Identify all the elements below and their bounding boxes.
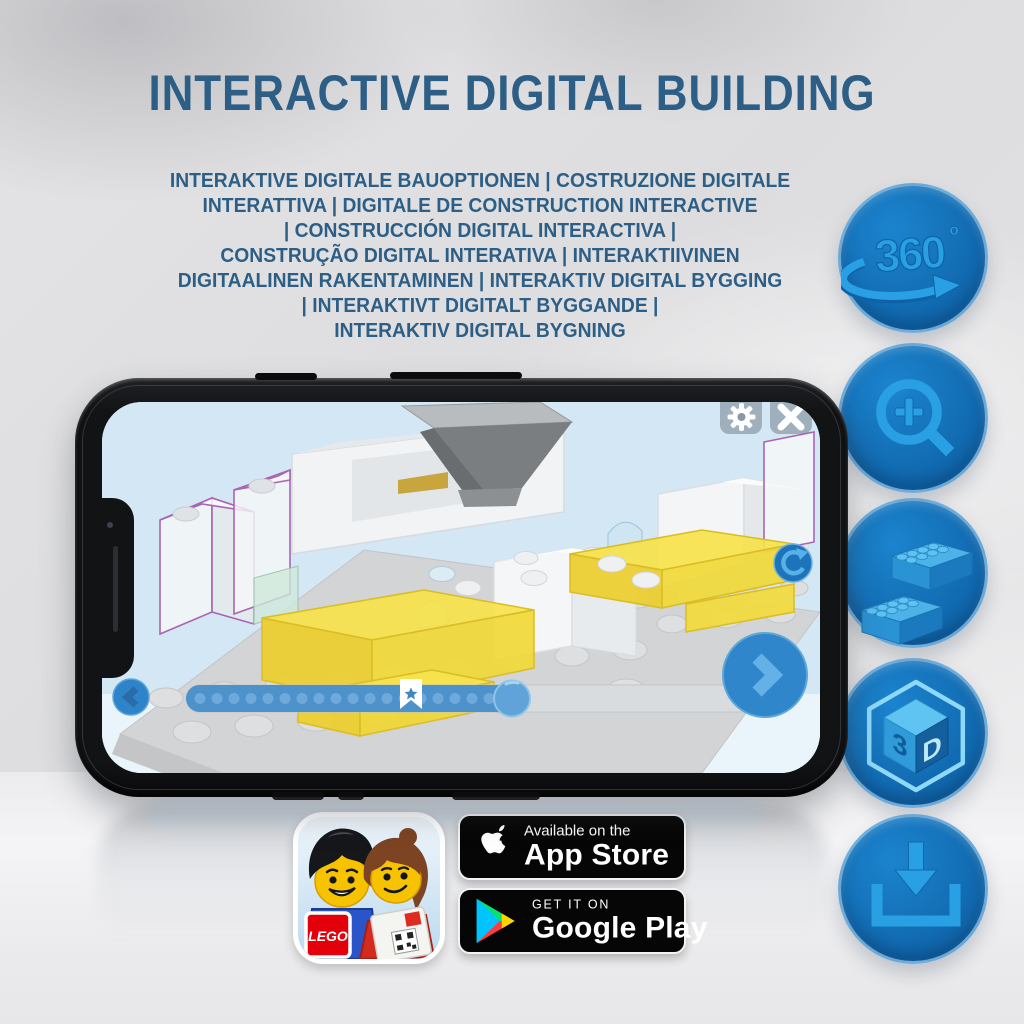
lego-bricks-icon (841, 501, 991, 651)
build-progress-bar[interactable] (186, 679, 755, 717)
phone-port (452, 792, 540, 800)
app-screen (102, 402, 820, 773)
lego-build-scene (102, 402, 820, 773)
download-icon (841, 817, 991, 967)
google-play-badge[interactable]: GET IT ON Google Play (458, 888, 686, 954)
svg-text:LEGO: LEGO (308, 928, 348, 944)
google-play-tagline: GET IT ON (532, 898, 708, 913)
phone-side-button (390, 372, 522, 379)
gear-icon (728, 403, 756, 431)
lego-logo: LEGO (306, 913, 350, 957)
subtitle-translations: INTERAKTIVE DIGITALE BAUOPTIONEN | COSTR… (134, 168, 826, 343)
phone-notch (102, 498, 134, 678)
instruction-booklet (370, 907, 432, 959)
feature-zoom-badge (838, 343, 988, 493)
previous-step-button[interactable] (113, 679, 149, 715)
feature-3d-badge: 3 D (838, 658, 988, 808)
subtitle-line: INTERAKTIVE DIGITALE BAUOPTIONEN | COSTR… (134, 168, 826, 193)
subtitle-line: INTERATTIVA | DIGITALE DE CONSTRUCTION I… (134, 193, 826, 218)
lego-app-icon[interactable]: LEGO (293, 812, 445, 964)
camera-dot (107, 522, 113, 528)
subtitle-line: | CONSTRUCCIÓN DIGITAL INTERACTIVA | (134, 218, 826, 243)
svg-text:360: 360 (873, 226, 946, 282)
phone-port (338, 792, 364, 800)
subtitle-line: CONSTRUÇÃO DIGITAL INTERATIVA | INTERAKT… (134, 243, 826, 268)
next-step-button[interactable] (723, 633, 807, 717)
apple-icon (475, 825, 513, 869)
google-play-name: Google Play (532, 913, 708, 945)
svg-text:º: º (949, 220, 961, 251)
rotate-button[interactable] (774, 544, 812, 582)
app-store-badge[interactable]: Available on the App Store (458, 814, 686, 880)
360-rotation-icon: 360 º (841, 186, 991, 336)
app-store-name: App Store (524, 840, 669, 872)
smartphone (75, 378, 848, 797)
speaker-slit (113, 546, 118, 632)
settings-button[interactable] (720, 402, 762, 434)
phone-port (272, 792, 324, 800)
phone-side-button (255, 373, 317, 380)
progress-slider-handle[interactable] (494, 681, 530, 717)
page-title: INTERACTIVE DIGITAL BUILDING (61, 64, 962, 122)
poster: INTERACTIVE DIGITAL BUILDING INTERAKTIVE… (0, 0, 1024, 1024)
qr-code (391, 928, 418, 954)
subtitle-line: DIGITAALINEN RAKENTAMINEN | INTERAKTIV D… (134, 268, 826, 293)
subtitle-line: | INTERAKTIVT DIGITALT BYGGANDE | (134, 293, 826, 318)
feature-bricks-badge (838, 498, 988, 648)
zoom-in-icon (841, 346, 991, 496)
lego-app-art: LEGO (298, 817, 440, 959)
feature-download-badge (838, 814, 988, 964)
subtitle-line: INTERAKTIV DIGITAL BYGNING (134, 318, 826, 343)
app-store-tagline: Available on the (524, 823, 669, 840)
3d-view-icon: 3 D (841, 661, 991, 811)
feature-360-badge: 360 º (838, 183, 988, 333)
close-button[interactable] (770, 402, 812, 434)
google-play-icon (475, 898, 517, 944)
